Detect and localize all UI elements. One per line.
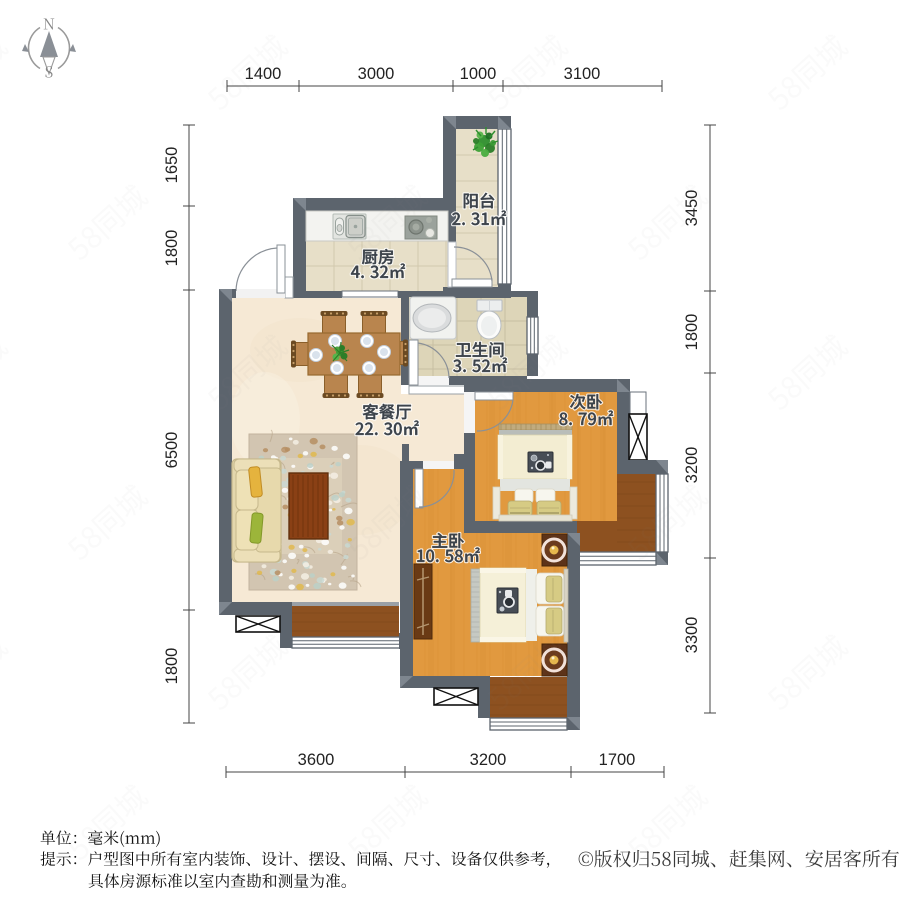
svg-text:1800: 1800 — [163, 230, 181, 267]
svg-text:3100: 3100 — [564, 65, 601, 83]
svg-text:1800: 1800 — [683, 314, 701, 351]
svg-text:3000: 3000 — [358, 65, 395, 83]
svg-text:3200: 3200 — [470, 751, 507, 769]
svg-text:1000: 1000 — [460, 65, 497, 83]
svg-text:3300: 3300 — [683, 617, 701, 654]
svg-text:1700: 1700 — [599, 751, 636, 769]
svg-text:3600: 3600 — [298, 751, 335, 769]
svg-text:1650: 1650 — [163, 147, 181, 184]
svg-text:3200: 3200 — [683, 447, 701, 484]
svg-text:6500: 6500 — [163, 432, 181, 469]
svg-text:1800: 1800 — [163, 648, 181, 685]
